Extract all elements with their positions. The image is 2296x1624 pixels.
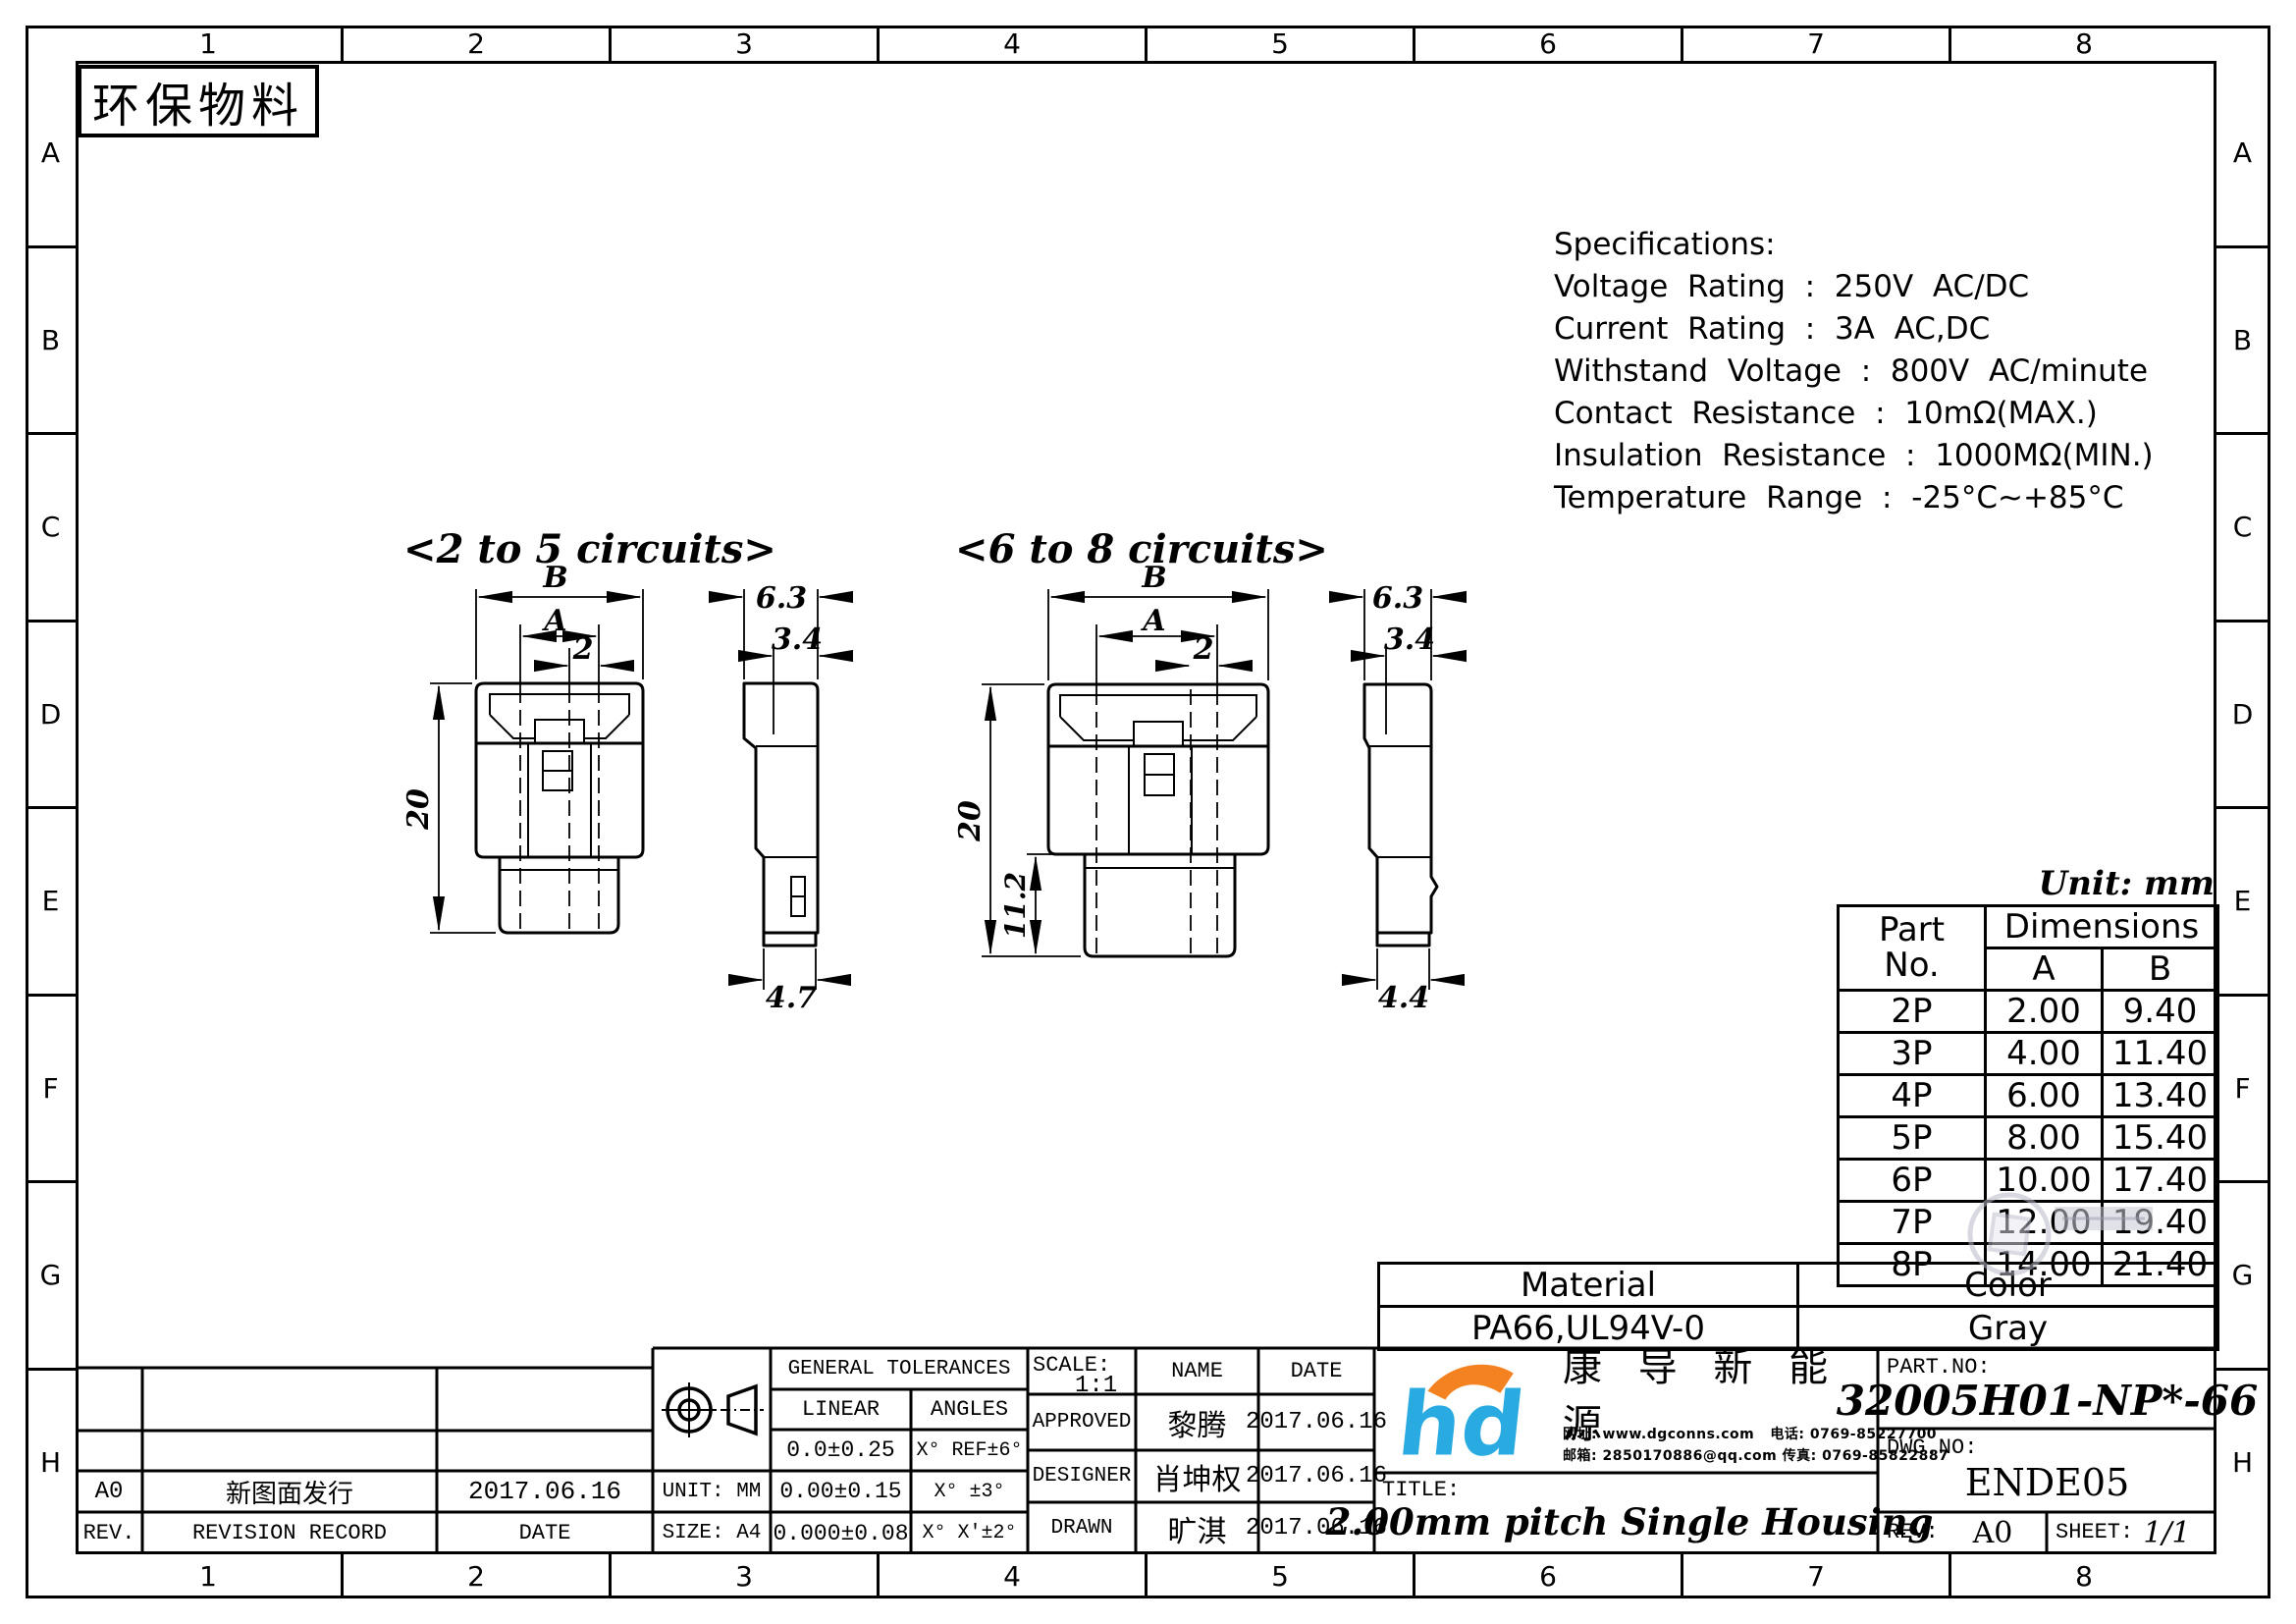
company-logo-icon: hd bbox=[1386, 1358, 1553, 1468]
revision-header-date: DATE bbox=[437, 1512, 653, 1554]
projection-symbol-icon bbox=[658, 1355, 766, 1465]
svg-text:hd: hd bbox=[1393, 1375, 1529, 1468]
revision-rev: A0 bbox=[76, 1471, 142, 1512]
rev-value: A0 bbox=[1939, 1512, 2047, 1554]
watermark-stamp bbox=[1949, 1183, 2184, 1291]
tolerance-angles-0: X° REF±6° bbox=[911, 1430, 1028, 1471]
approval-role-approved: APPROVED bbox=[1028, 1394, 1136, 1450]
approval-name-designer: 肖坤权 bbox=[1136, 1450, 1258, 1502]
approval-name-approved: 黎腾 bbox=[1136, 1394, 1258, 1450]
approval-date-designer: 2017.06.16 bbox=[1258, 1450, 1374, 1502]
size-field: SIZE: A4 bbox=[653, 1512, 771, 1554]
tolerance-linear-1: 0.00±0.15 bbox=[771, 1471, 911, 1512]
approval-role-drawn: DRAWN bbox=[1028, 1502, 1136, 1554]
drawing-sheet: 12345678 12345678 ABCDEFGH ABCDEFGH 环保物料… bbox=[0, 0, 2296, 1624]
revision-header-rev: REV. bbox=[76, 1512, 142, 1554]
company-name: 康 导 新 能 源 bbox=[1563, 1367, 1877, 1418]
tolerances-angles-label: ANGLES bbox=[911, 1389, 1028, 1430]
tolerance-angles-1: X° ±3° bbox=[911, 1471, 1028, 1512]
tolerances-linear-label: LINEAR bbox=[771, 1389, 911, 1430]
approval-role-designer: DESIGNER bbox=[1028, 1450, 1136, 1502]
tolerance-linear-2: 0.000±0.08 bbox=[771, 1512, 911, 1554]
revision-record: 新图面发行 bbox=[142, 1471, 437, 1512]
sheet-value: 1/1 bbox=[2120, 1512, 2214, 1554]
tolerance-angles-2: X° X'±2° bbox=[911, 1512, 1028, 1554]
revision-header-record: REVISION RECORD bbox=[142, 1512, 437, 1554]
tolerance-linear-0: 0.0±0.25 bbox=[771, 1430, 911, 1471]
dwg-no-value: ENDE05 bbox=[1878, 1457, 2216, 1508]
name-header: NAME bbox=[1136, 1348, 1258, 1394]
revision-date: 2017.06.16 bbox=[437, 1471, 653, 1512]
drawing-title: 2.00mm pitch Single Housing bbox=[1384, 1494, 1875, 1549]
rev-label: REV: bbox=[1887, 1520, 1939, 1544]
approval-date-approved: 2017.06.16 bbox=[1258, 1394, 1374, 1450]
unit-field: UNIT: MM bbox=[653, 1471, 771, 1512]
date-header: DATE bbox=[1258, 1348, 1374, 1394]
tolerances-title: GENERAL TOLERANCES bbox=[771, 1348, 1028, 1389]
approval-name-drawn: 旷淇 bbox=[1136, 1502, 1258, 1554]
company-contact-line1: 网址: www.dgconns.com 电话: 0769-85227700 bbox=[1563, 1424, 1937, 1443]
part-no-value: 32005H01-NP*-66 bbox=[1878, 1375, 2216, 1426]
